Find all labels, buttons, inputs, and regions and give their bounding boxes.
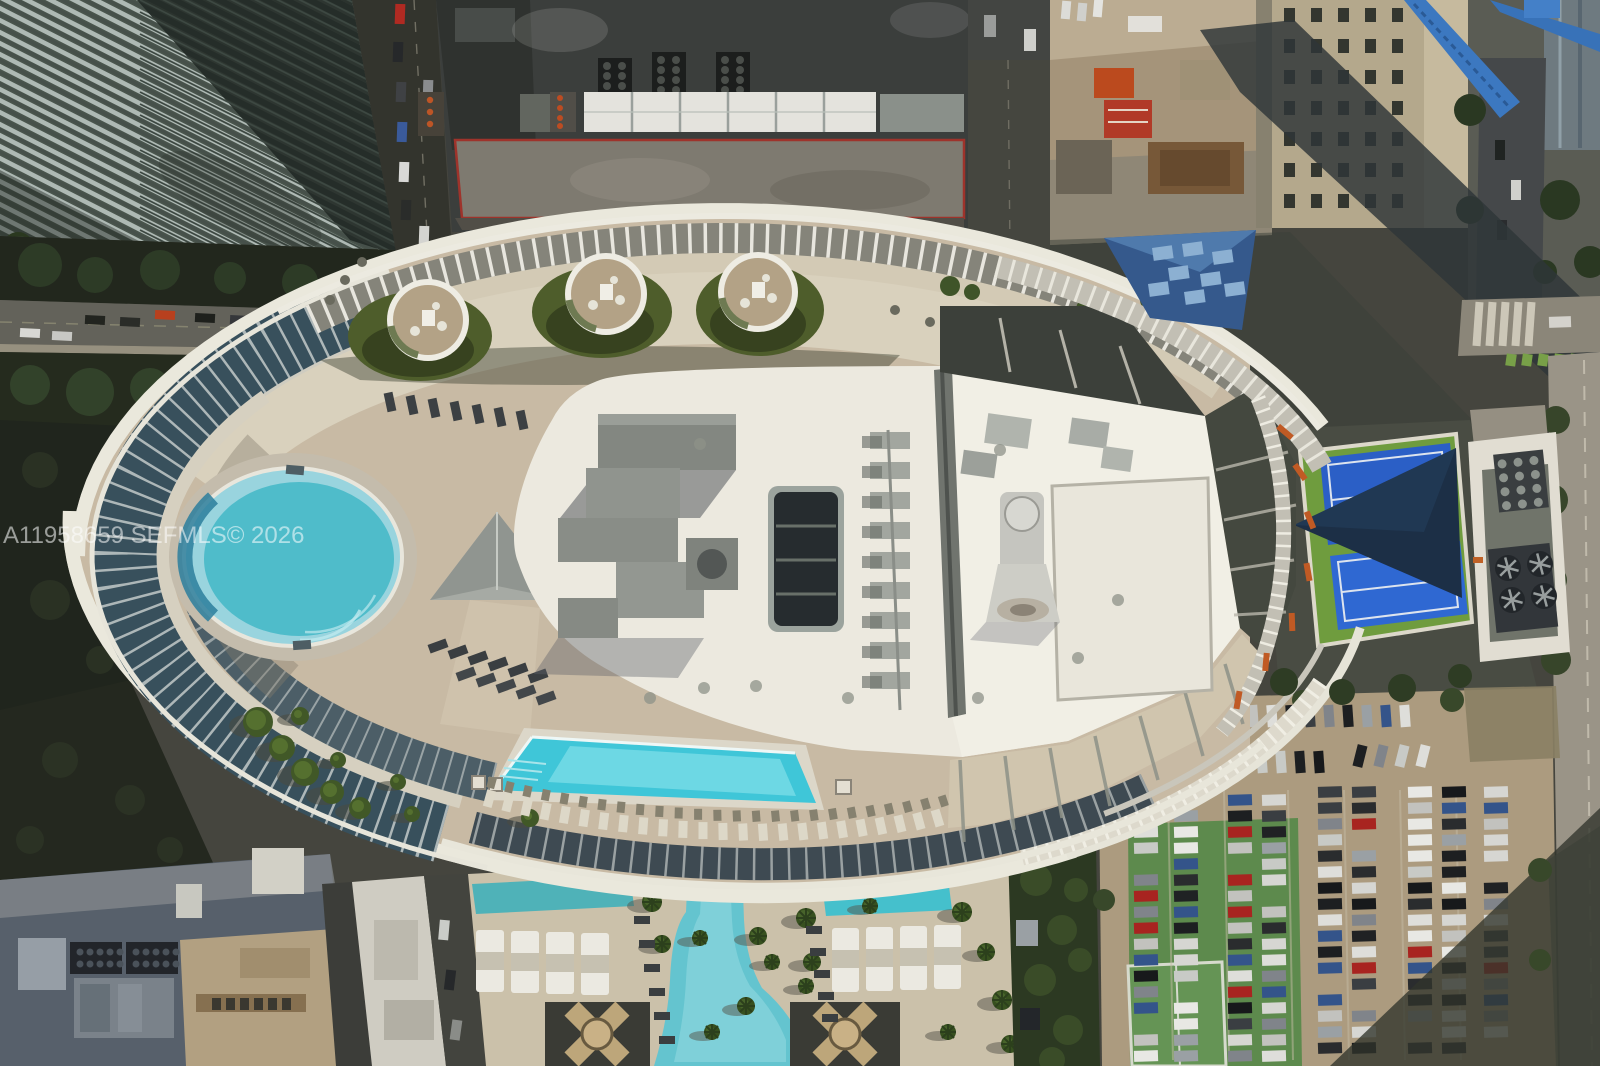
svg-text:A11958659 SEFMLS© 2026: A11958659 SEFMLS© 2026 bbox=[3, 522, 304, 549]
